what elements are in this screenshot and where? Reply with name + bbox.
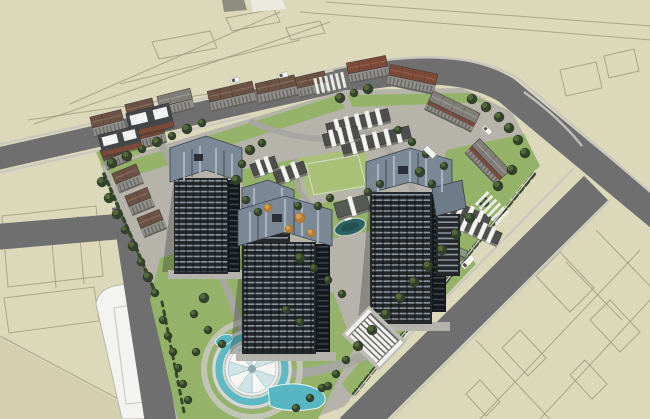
- tree-highlight: [365, 188, 369, 192]
- render-stage: [0, 0, 650, 419]
- tree-highlight: [368, 326, 374, 332]
- tree-highlight: [410, 278, 416, 284]
- tree-highlight: [508, 166, 514, 172]
- tree-highlight: [505, 124, 511, 130]
- tree-highlight: [98, 178, 104, 184]
- tree-highlight: [325, 276, 329, 280]
- tree-highlight: [122, 226, 126, 230]
- tree-highlight: [153, 138, 159, 144]
- tree-highlight: [416, 168, 422, 174]
- tree-highlight: [295, 202, 299, 206]
- fountain-center: [248, 365, 256, 373]
- tree-highlight: [199, 119, 203, 123]
- tree-highlight: [152, 289, 156, 293]
- tree-highlight: [180, 380, 184, 384]
- tree-highlight: [105, 194, 111, 200]
- tree-highlight: [129, 242, 135, 248]
- tree-highlight: [307, 394, 311, 398]
- tree-highlight: [377, 180, 381, 184]
- tree-highlight: [193, 348, 197, 352]
- tree-highlight: [297, 318, 301, 322]
- tree-highlight: [175, 364, 179, 368]
- tree-highlight: [438, 246, 444, 252]
- tree-highlight: [424, 262, 430, 268]
- tree-highlight: [108, 159, 114, 165]
- tree-highlight: [205, 326, 209, 330]
- tree-highlight: [495, 113, 501, 119]
- tree-highlight: [139, 145, 143, 149]
- tree-highlight: [296, 254, 302, 260]
- tree-highlight: [183, 125, 189, 131]
- tree-highlight: [466, 214, 472, 220]
- tree-highlight: [185, 396, 189, 400]
- tree-highlight: [170, 348, 174, 352]
- tree-highlight: [468, 95, 474, 101]
- autumn-tree-highlight: [265, 204, 269, 208]
- tree-highlight: [160, 316, 164, 320]
- tree-highlight: [138, 258, 142, 262]
- tree-highlight: [259, 139, 263, 143]
- tree-highlight: [514, 136, 520, 142]
- tree-highlight: [232, 176, 238, 182]
- tree-highlight: [243, 196, 247, 200]
- tree-highlight: [255, 208, 259, 212]
- tree-highlight: [219, 340, 223, 344]
- autumn-tree-highlight: [308, 229, 312, 233]
- tree-highlight: [521, 149, 527, 155]
- tree-highlight: [165, 332, 169, 336]
- tree-highlight: [246, 146, 252, 152]
- context-roof-gray: [222, 0, 247, 12]
- autumn-tree-highlight: [296, 214, 302, 220]
- tree-highlight: [311, 264, 315, 268]
- tree-highlight: [327, 194, 331, 198]
- tree-highlight: [351, 89, 355, 93]
- tree-highlight: [123, 152, 129, 158]
- tree-highlight: [319, 384, 323, 388]
- tree-highlight: [293, 404, 297, 408]
- tree-highlight: [354, 342, 360, 348]
- tree-highlight: [315, 202, 319, 206]
- tree-highlight: [482, 103, 488, 109]
- tree-highlight: [239, 160, 243, 164]
- tree-highlight: [113, 210, 119, 216]
- highrise-tower-1: [170, 136, 242, 274]
- tree-highlight: [409, 138, 413, 142]
- highrise-tower-2: [238, 196, 332, 354]
- tree-highlight: [333, 370, 337, 374]
- autumn-tree-highlight: [286, 225, 290, 229]
- tree-highlight: [452, 230, 458, 236]
- tree-highlight: [343, 356, 347, 360]
- tree-highlight: [395, 126, 399, 130]
- tree-highlight: [396, 294, 402, 300]
- tree-highlight: [382, 310, 388, 316]
- tree-highlight: [144, 273, 150, 279]
- aerial-site-render: [0, 0, 650, 419]
- tree-highlight: [169, 132, 173, 136]
- tree-highlight: [364, 85, 370, 91]
- tree-highlight: [441, 162, 445, 166]
- tree-highlight: [494, 182, 500, 188]
- tree-highlight: [336, 94, 342, 100]
- tree-highlight: [191, 310, 195, 314]
- tree-highlight: [429, 180, 433, 184]
- tree-highlight: [283, 306, 287, 310]
- tree-highlight: [339, 290, 343, 294]
- tree-highlight: [200, 294, 206, 300]
